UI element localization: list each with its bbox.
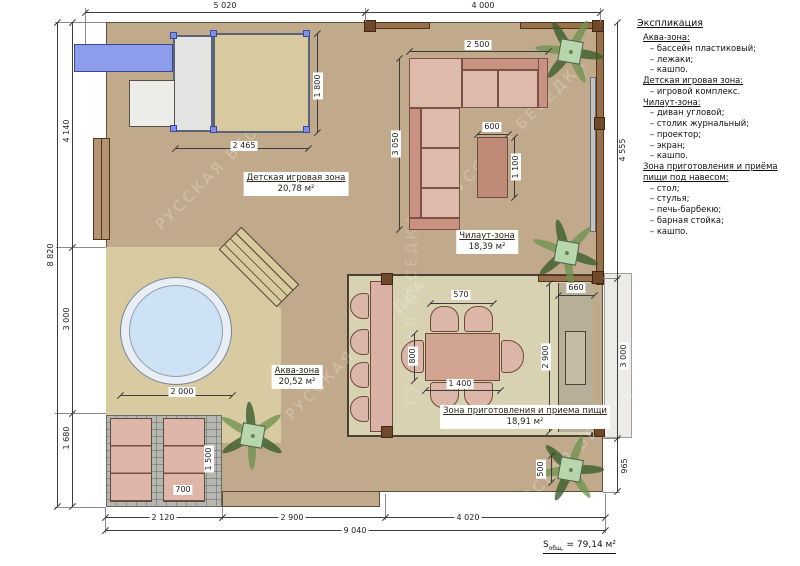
dim-label: 1 680 [62, 425, 72, 452]
plant-icon [224, 407, 280, 463]
dim-line [558, 295, 594, 296]
dim-label: 660 [566, 283, 585, 293]
dim-label: 3 000 [619, 343, 629, 370]
bar-stool [350, 293, 369, 319]
dim-label: 4 555 [618, 137, 628, 164]
play-platform [173, 35, 213, 132]
total-value: = 79,14 м² [564, 540, 616, 550]
play-square [213, 33, 310, 133]
legend-item: – столик журнальный; [650, 118, 797, 129]
planter-pot [553, 239, 580, 266]
wall-post [381, 426, 393, 438]
corner-sofa-seat [498, 70, 538, 108]
play-box [129, 80, 175, 127]
corner-sofa-backrest [462, 58, 548, 70]
legend-title: Экспликация [637, 18, 797, 30]
play-post [210, 126, 217, 133]
zone-label-chill: Чилаут-зона 18,39 м² [456, 230, 518, 254]
legend-item: – экран; [650, 140, 797, 151]
extension-line [55, 507, 106, 508]
dim-label: 5 020 [212, 1, 239, 11]
dim-line [365, 12, 600, 13]
dim-label: 570 [451, 290, 470, 300]
dim-line [617, 22, 618, 492]
corner-sofa-seat [421, 188, 460, 218]
dim-label: 1 100 [511, 154, 521, 181]
dim-label: 2 500 [465, 40, 492, 50]
dim-label: 1 400 [447, 379, 474, 389]
zone-name: Аква-зона [275, 366, 320, 377]
legend-item: – проектор; [650, 129, 797, 140]
zone-label-aqua: Аква-зона 20,52 м² [272, 365, 323, 389]
legend-item: – барная стойка; [650, 215, 797, 226]
dim-label: 9 040 [342, 526, 369, 536]
dining-table [425, 333, 500, 381]
extension-line [55, 413, 106, 414]
bar-stool [350, 329, 369, 355]
play-post [210, 30, 217, 37]
slide [74, 44, 173, 72]
legend-item: – игровой комплекс. [650, 86, 797, 97]
dim-label: 4 020 [455, 513, 482, 523]
dim-label: 2 900 [279, 513, 306, 523]
zone-area: 18,91 м² [507, 417, 544, 427]
coffee-table [477, 137, 508, 198]
zone-name: Детская игровая зона [247, 173, 346, 184]
dim-label: 1 500 [204, 446, 214, 473]
bar-stool [350, 362, 369, 388]
planter-pot [239, 422, 266, 449]
bbq-stove [565, 331, 586, 385]
legend-section-header: Детская игровая зона: [643, 75, 797, 86]
corner-sofa-seat [421, 108, 460, 148]
play-post [170, 32, 177, 39]
corner-sofa-armrest [409, 218, 460, 230]
dim-line [551, 455, 552, 483]
extension-line [55, 247, 106, 248]
zone-name: Чилаут-зона [459, 231, 515, 242]
extension-line [605, 494, 606, 533]
dim-line [105, 517, 605, 518]
legend-item: – кашпо. [650, 64, 797, 75]
planter-pot [557, 38, 584, 65]
extension-line [55, 22, 106, 23]
total-subscript: общ. [549, 545, 564, 552]
legend-item: – лежаки; [650, 54, 797, 65]
dim-line [57, 22, 58, 507]
zone-label-play: Детская игровая зона 20,78 м² [244, 172, 349, 196]
dim-label: 600 [482, 122, 501, 132]
dim-line [409, 51, 548, 52]
planter-pot [557, 456, 584, 483]
legend-item: – печь-барбекю; [650, 204, 797, 215]
dim-label: 2 120 [150, 513, 177, 523]
legend: Экспликация Аква-зона: – бассейн пластик… [637, 18, 797, 236]
play-post [303, 126, 310, 133]
zone-area: 20,78 м² [278, 184, 315, 194]
dining-chair [430, 306, 459, 332]
pool-water [129, 285, 223, 377]
dining-chair [464, 306, 493, 332]
dim-label: 8 820 [46, 242, 56, 269]
dim-label: 700 [173, 485, 192, 495]
legend-item: – кашпо. [650, 226, 797, 237]
dim-line [430, 303, 493, 304]
dim-label: 4 140 [62, 118, 72, 145]
dim-label: 2 465 [231, 141, 258, 151]
legend-section-header: Чилаут-зона: [643, 97, 797, 108]
projector-screen [590, 77, 596, 232]
dim-label: 500 [536, 459, 546, 478]
corner-sofa-seat [462, 70, 498, 108]
corner-sofa-seat [409, 58, 462, 108]
bar-stool [350, 396, 369, 422]
legend-item: – стулья; [650, 193, 797, 204]
dim-line [477, 134, 508, 135]
wall-post [594, 117, 605, 130]
zone-area: 20,52 м² [279, 377, 316, 387]
dim-line [72, 22, 73, 507]
legend-section-header: Аква-зона: [643, 32, 797, 43]
lounger [110, 418, 152, 502]
bar-counter [370, 281, 393, 432]
total-area-label: Sобщ. = 79,14 м² [543, 540, 616, 554]
legend-item: – диван угловой; [650, 107, 797, 118]
corner-sofa-backrest [409, 108, 421, 218]
dim-line [85, 12, 365, 13]
zone-label-dining: Зона приготовления и приема пищи 18,91 м… [440, 405, 610, 429]
legend-item: – бассейн пластиковый; [650, 43, 797, 54]
dim-line [425, 390, 500, 391]
plant-icon [538, 224, 594, 280]
legend-item: – стол; [650, 183, 797, 194]
legend-section-header: Зона приготовления и приёма пищи под нав… [643, 161, 797, 183]
privacy-screen-line [101, 139, 102, 239]
dim-label: 2 000 [169, 387, 196, 397]
dim-label: 3 050 [391, 131, 401, 158]
dim-label: 965 [620, 456, 630, 475]
legend-item: – кашпо. [650, 150, 797, 161]
dim-label: 4 000 [470, 1, 497, 11]
corner-sofa-seat [421, 148, 460, 188]
dim-label: 800 [408, 346, 418, 365]
play-post [303, 30, 310, 37]
floor-plan-canvas: РУССКАЯ БЕСЕДКА РУССКАЯ БЕСЕДКА РУССКАЯ … [0, 0, 800, 566]
zone-name: Зона приготовления и приема пищи [443, 406, 607, 417]
wall-post [381, 273, 393, 285]
plant-icon [542, 23, 598, 79]
deck-step [222, 492, 380, 507]
play-post [170, 125, 177, 132]
zone-area: 18,39 м² [469, 242, 506, 252]
dim-label: 3 000 [62, 306, 72, 333]
dim-label: 1 800 [313, 73, 323, 100]
dim-label: 2 900 [541, 344, 551, 371]
